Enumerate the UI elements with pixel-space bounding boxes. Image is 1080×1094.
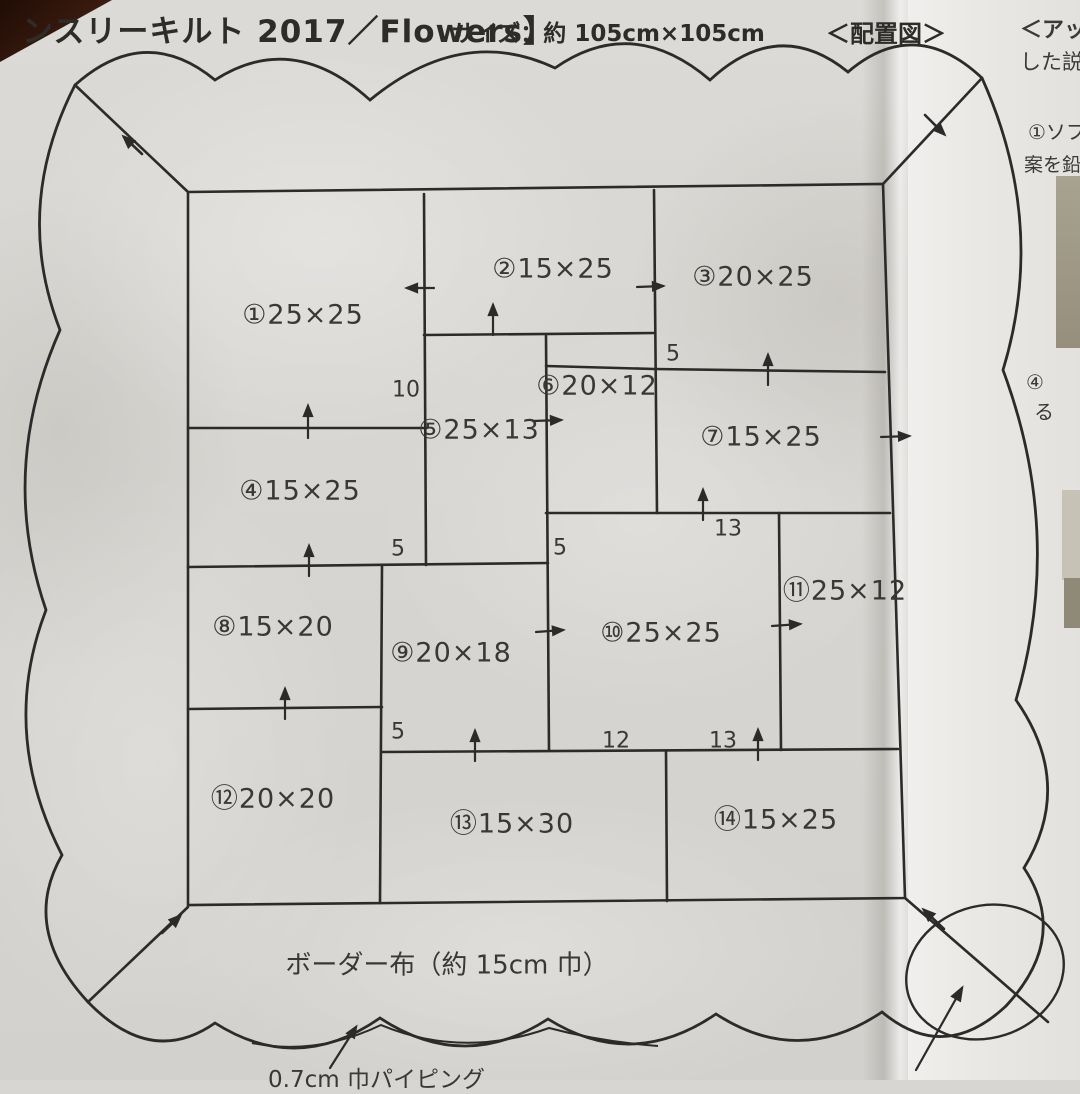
block-label-5: ⑤25×13 <box>418 415 540 446</box>
block-label-12: ⑫20×20 <box>211 777 335 816</box>
block-label-14: ⑭15×25 <box>714 798 838 837</box>
block-label-9: ⑨20×18 <box>390 638 512 669</box>
block-label-2: ②15×25 <box>492 254 614 285</box>
border-fabric-label: ボーダー布（約 15cm 巾） <box>285 945 608 982</box>
side-column-text: る <box>1034 396 1054 425</box>
side-column-text: ＜アッ <box>1020 12 1080 44</box>
strip-dimension-label: 12 <box>602 729 630 754</box>
strip-dimension-label: 13 <box>709 729 737 754</box>
side-column-text: 案を鉛 <box>1024 150 1080 177</box>
diagram-caption: ＜配置図＞ <box>826 14 946 49</box>
strip-dimension-label: 13 <box>714 517 742 542</box>
block-label-11: ⑪25×12 <box>783 569 907 608</box>
strip-dimension-label: 10 <box>392 378 420 403</box>
strip-dimension-label: 5 <box>666 342 680 367</box>
strip-dimension-label: 5 <box>553 536 567 561</box>
callout-arrows <box>330 988 962 1070</box>
block-label-10: ⑩25×25 <box>600 618 722 649</box>
block-label-4: ④15×25 <box>239 476 361 507</box>
block-label-7: ⑦15×25 <box>700 422 822 453</box>
block-label-13: ⑬15×30 <box>450 802 574 841</box>
block-label-3: ③20×25 <box>692 262 814 293</box>
block-label-1: ①25×25 <box>242 300 364 331</box>
side-column-text: ④ <box>1026 370 1044 394</box>
side-column-text: ①ソフ <box>1028 116 1080 145</box>
strip-dimension-label: 5 <box>391 537 405 562</box>
side-column-text: した説 <box>1020 46 1080 76</box>
size-label: サイズ：約 105cm×105cm <box>452 14 765 48</box>
block-label-6: ⑥20×12 <box>536 371 658 402</box>
strip-dimension-label: 5 <box>391 720 405 745</box>
grain-direction-arrows <box>281 282 909 761</box>
quilt-layout-diagram <box>0 0 1080 1080</box>
piping-double-line <box>252 1025 658 1047</box>
piping-label: 0.7cm 巾パイピング <box>268 1060 485 1094</box>
block-label-8: ⑧15×20 <box>212 612 334 643</box>
